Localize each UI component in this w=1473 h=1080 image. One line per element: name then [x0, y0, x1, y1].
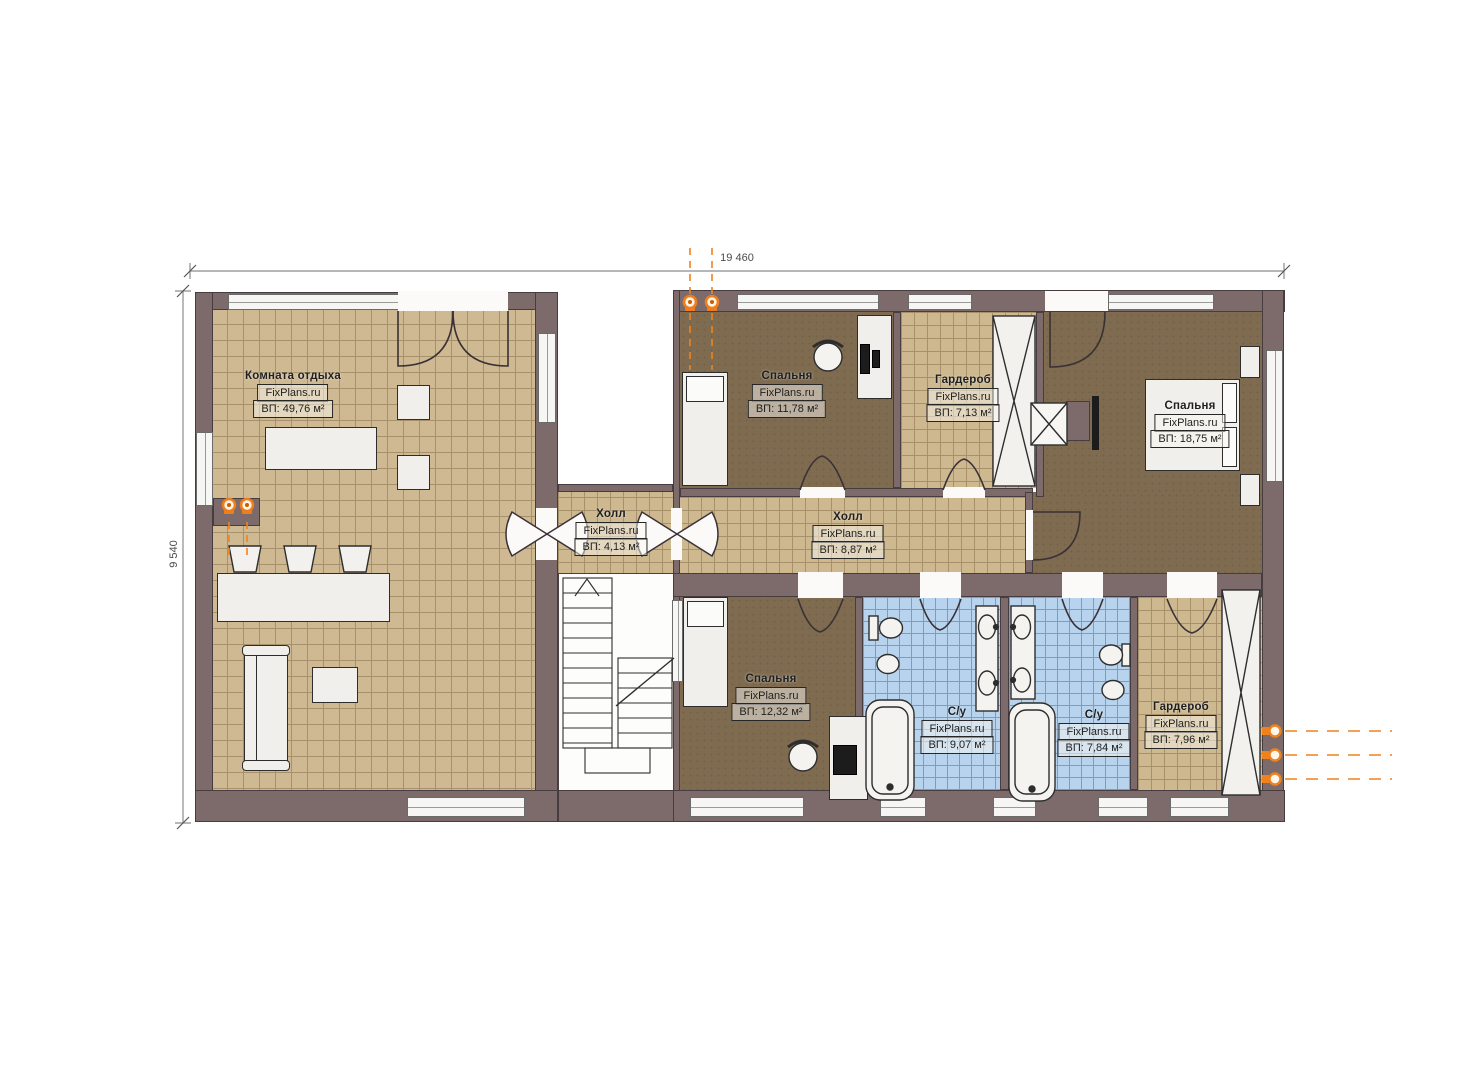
room-label-bedroom3: Спальня FixPlans.ru ВП: 12,32 м²: [731, 673, 810, 721]
window: [228, 294, 400, 310]
door-opening: [1062, 572, 1103, 598]
sofa: [244, 648, 288, 768]
room-area-box: ВП: 8,87 м²: [811, 541, 884, 559]
radiator-niche: [213, 498, 260, 526]
door-opening: [943, 487, 985, 498]
floor-bath1: [863, 597, 1000, 790]
stool: [397, 455, 430, 490]
door-opening: [536, 508, 557, 560]
room-area-box: ВП: 12,32 м²: [731, 703, 810, 721]
wall-segment: [558, 484, 673, 492]
watermark-box: FixPlans.ru: [1154, 414, 1225, 432]
sofa-armrest: [242, 760, 290, 771]
room-name: Спальня: [745, 673, 796, 685]
window: [1108, 294, 1214, 310]
room-name: С/у: [1085, 709, 1104, 721]
door-opening: [398, 291, 508, 311]
window: [1098, 797, 1148, 817]
window: [880, 797, 926, 817]
door-opening: [800, 487, 845, 498]
watermark-box: FixPlans.ru: [575, 522, 646, 540]
floor-wardrobe2: [1138, 597, 1262, 790]
room-area-box: ВП: 7,96 м²: [1144, 731, 1217, 749]
door-opening: [920, 572, 961, 598]
room-label-wardrobe2: Гардероб FixPlans.ru ВП: 7,96 м²: [1144, 701, 1217, 749]
room-name: Спальня: [761, 370, 812, 382]
wall-segment: [1130, 597, 1138, 790]
table: [265, 427, 377, 470]
floor-bath2: [1009, 597, 1130, 790]
room-label-wardrobe1: Гардероб FixPlans.ru ВП: 7,13 м²: [926, 374, 999, 422]
room-label-rest: Комната отдыха FixPlans.ru ВП: 49,76 м²: [245, 370, 341, 418]
room-name: Гардероб: [935, 374, 991, 386]
dimension-height-label: 9 540: [168, 524, 180, 584]
watermark-box: FixPlans.ru: [927, 388, 998, 406]
pc-tower: [872, 350, 880, 368]
door-opening: [1167, 572, 1217, 598]
window: [538, 333, 556, 423]
room-label-bath1: С/у FixPlans.ru ВП: 9,07 м²: [920, 706, 993, 754]
door-opening: [798, 572, 843, 598]
window: [1170, 797, 1229, 817]
watermark-box: FixPlans.ru: [257, 384, 328, 402]
watermark-box: FixPlans.ru: [1145, 715, 1216, 733]
room-label-bedroom1: Спальня FixPlans.ru ВП: 11,78 м²: [748, 370, 826, 418]
watermark-box: FixPlans.ru: [751, 384, 822, 402]
room-area-box: ВП: 7,13 м²: [926, 404, 999, 422]
watermark-box: FixPlans.ru: [735, 687, 806, 705]
wall-segment: [558, 790, 680, 822]
window: [196, 432, 213, 506]
room-area-box: ВП: 9,07 м²: [920, 736, 993, 754]
window: [993, 797, 1036, 817]
dimension-width-label: 19 460: [190, 252, 1284, 264]
wall-segment: [1036, 312, 1044, 497]
door-opening: [671, 508, 682, 560]
room-name: Гардероб: [1153, 701, 1209, 713]
wall-segment: [893, 312, 901, 488]
wall-segment: [195, 292, 213, 822]
room-area-box: ВП: 11,78 м²: [748, 400, 826, 418]
room-name: Холл: [596, 508, 626, 520]
nightstand: [1240, 346, 1260, 378]
room-area-box: ВП: 18,75 м²: [1150, 430, 1229, 448]
room-name: Холл: [833, 511, 863, 523]
bed: [682, 372, 728, 486]
window: [690, 797, 804, 817]
room-name: Комната отдыха: [245, 370, 341, 382]
room-label-hall2: Холл FixPlans.ru ВП: 8,87 м²: [811, 511, 884, 559]
pillow: [687, 601, 724, 627]
window: [407, 797, 525, 817]
room-area-box: ВП: 4,13 м²: [574, 538, 647, 556]
bed: [683, 597, 728, 707]
room-label-bedroom2: Спальня FixPlans.ru ВП: 18,75 м²: [1150, 400, 1229, 448]
window: [672, 600, 683, 682]
bar-counter: [217, 573, 390, 622]
room-area-box: ВП: 49,76 м²: [253, 400, 332, 418]
window: [908, 294, 972, 310]
monitor: [860, 344, 870, 374]
sofa-armrest: [242, 645, 290, 656]
stool: [397, 385, 430, 420]
pillow: [686, 376, 724, 402]
tv-wall-stub: [1066, 401, 1090, 441]
side-table: [312, 667, 358, 703]
floor-staircase: [558, 573, 675, 792]
floor-plan-canvas: 19 460 9 540 Комната отдыха FixPlans.ru …: [0, 0, 1473, 1080]
door-opening: [1026, 510, 1033, 560]
watermark-box: FixPlans.ru: [921, 720, 992, 738]
watermark-box: FixPlans.ru: [812, 525, 883, 543]
room-area-box: ВП: 7,84 м²: [1057, 739, 1130, 757]
room-name: Спальня: [1164, 400, 1215, 412]
wall-segment: [1000, 597, 1009, 790]
printer: [833, 745, 857, 775]
door-opening: [1045, 291, 1108, 311]
window: [737, 294, 879, 310]
sofa-back-line: [256, 652, 257, 764]
watermark-box: FixPlans.ru: [1058, 723, 1129, 741]
room-label-hall1: Холл FixPlans.ru ВП: 4,13 м²: [574, 508, 647, 556]
room-label-bath2: С/у FixPlans.ru ВП: 7,84 м²: [1057, 709, 1130, 757]
window: [1266, 350, 1283, 482]
room-name: С/у: [948, 706, 967, 718]
nightstand: [1240, 474, 1260, 506]
floor-bedroom2-entry: [1033, 492, 1262, 573]
